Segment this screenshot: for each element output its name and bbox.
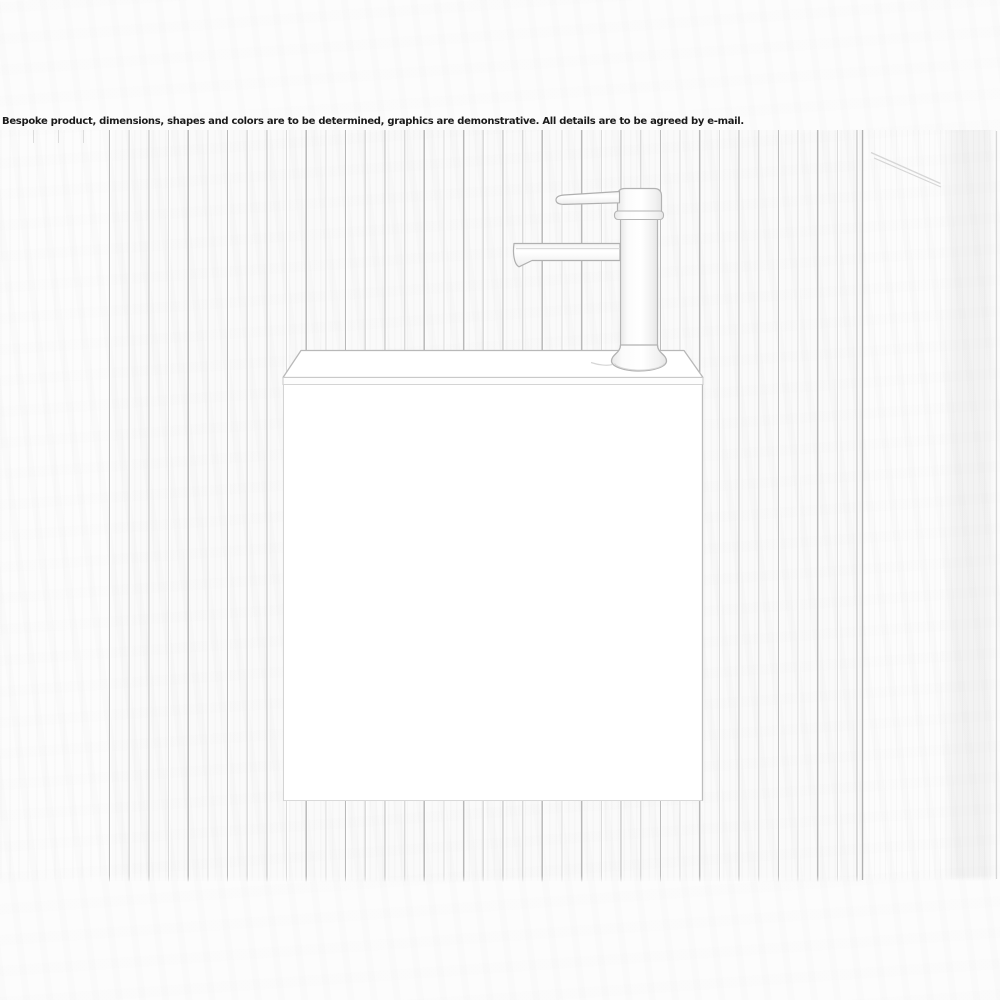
tap-lever-handle xyxy=(556,192,620,205)
product-image: Bespoke product, dimensions, shapes and … xyxy=(0,0,1000,1000)
towel-rail-lower-line xyxy=(874,158,941,187)
towel-rail-upper-line xyxy=(871,153,941,184)
scene-drawing xyxy=(0,0,1000,1000)
tap-spout xyxy=(514,244,620,267)
tap-body xyxy=(621,218,658,352)
counter-front-bevel xyxy=(283,378,703,385)
tap-cartridge-housing xyxy=(618,189,662,215)
tap-housing-lip xyxy=(615,211,664,220)
washbasin-cabinet xyxy=(283,351,703,801)
towel-rail xyxy=(871,153,941,188)
cabinet-front xyxy=(284,385,703,801)
disclaimer-text: Bespoke product, dimensions, shapes and … xyxy=(2,116,744,127)
mixer-tap xyxy=(514,189,667,372)
